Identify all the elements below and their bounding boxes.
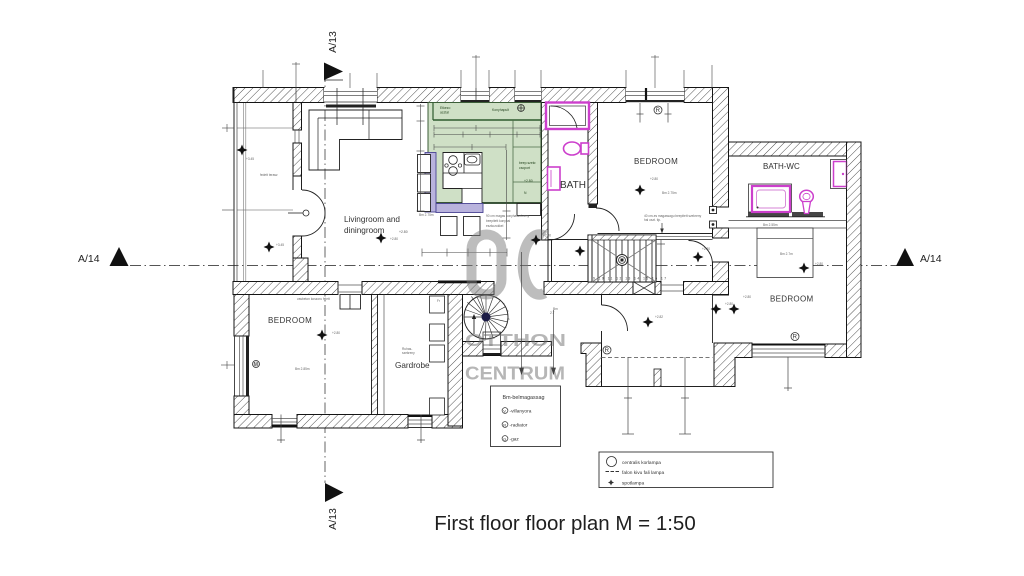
svg-text:+3.45: +3.45 xyxy=(276,243,284,247)
svg-text:Bm 2.75m: Bm 2.75m xyxy=(419,213,434,217)
svg-text:spotlampa: spotlampa xyxy=(622,481,644,487)
svg-text:R: R xyxy=(656,108,661,114)
svg-text:G: G xyxy=(503,436,506,441)
svg-text:Livingroom and: Livingroom and xyxy=(344,215,400,224)
svg-text:+2.80: +2.80 xyxy=(524,179,533,183)
svg-text:Etkezo: Etkezo xyxy=(440,106,450,110)
svg-text:+2.80: +2.80 xyxy=(332,331,340,335)
svg-text:falon kivu fali lampa: falon kivu fali lampa xyxy=(622,470,664,476)
svg-text:-gaz: -gaz xyxy=(510,438,520,443)
svg-text:Bm 2.75m: Bm 2.75m xyxy=(662,191,677,195)
svg-text:BEDROOM: BEDROOM xyxy=(634,157,678,166)
svg-text:diningroom: diningroom xyxy=(344,226,385,235)
svg-text:+2.80: +2.80 xyxy=(543,234,551,238)
svg-text:fedett terasz: fedett terasz xyxy=(260,173,278,177)
svg-text:+2.80: +2.80 xyxy=(702,247,710,251)
svg-text:beepitett konyhai: beepitett konyhai xyxy=(486,219,510,223)
svg-text:A/13: A/13 xyxy=(327,31,339,53)
svg-text:Bm 2.85m: Bm 2.85m xyxy=(295,367,310,371)
svg-text:BATH-WC: BATH-WC xyxy=(763,162,800,171)
svg-text:+2.80: +2.80 xyxy=(399,230,408,234)
svg-text:Konyhapult: Konyhapult xyxy=(492,108,509,112)
svg-text:Bm 2.7m: Bm 2.7m xyxy=(780,252,793,256)
svg-text:hal oszt. tip.: hal oszt. tip. xyxy=(644,218,661,222)
svg-text:A/13: A/13 xyxy=(327,508,339,530)
svg-text:szekreny: szekreny xyxy=(402,351,415,355)
svg-text:-villanyora: -villanyora xyxy=(510,409,532,415)
svg-text:BEDROOM: BEDROOM xyxy=(268,316,312,325)
svg-text:+2.80: +2.80 xyxy=(725,302,733,306)
svg-text:R: R xyxy=(793,335,798,341)
svg-text:A/14: A/14 xyxy=(78,253,100,265)
svg-text:+2.80: +2.80 xyxy=(743,295,751,299)
svg-text:+3.45: +3.45 xyxy=(246,157,254,161)
svg-text:Bm 2.55m: Bm 2.55m xyxy=(763,223,778,227)
svg-text:+2.80: +2.80 xyxy=(815,262,823,266)
svg-text:centralis korlampa: centralis korlampa xyxy=(622,460,661,466)
svg-text:beep.szekr.: beep.szekr. xyxy=(519,161,536,165)
svg-text:Bm-belmagassag: Bm-belmagassag xyxy=(503,395,545,401)
svg-text:BATH: BATH xyxy=(560,180,586,191)
svg-text:CENTRUM: CENTRUM xyxy=(465,363,565,384)
svg-text:M: M xyxy=(254,362,258,368)
svg-text:A/14: A/14 xyxy=(920,253,942,265)
svg-text:2.7: 2.7 xyxy=(550,311,555,315)
svg-text:90 cm magas konyhaszekreny: 90 cm magas konyhaszekreny xyxy=(486,214,529,218)
svg-text:First floor floor plan M = 1:5: First floor floor plan M = 1:50 xyxy=(434,512,696,535)
svg-text:R: R xyxy=(503,422,506,427)
svg-text:Gardrobe: Gardrobe xyxy=(395,361,430,370)
svg-text:BEDROOM: BEDROOM xyxy=(770,295,813,304)
svg-text:+2.80: +2.80 xyxy=(390,237,398,241)
svg-text:+2.82: +2.82 xyxy=(655,315,663,319)
svg-text:-radiator: -radiator xyxy=(510,423,528,429)
svg-text:+2.80: +2.80 xyxy=(650,177,658,181)
svg-text:OTTHON: OTTHON xyxy=(465,330,566,350)
svg-text:eszkozokkel: eszkozokkel xyxy=(486,224,504,228)
svg-text:R: R xyxy=(605,348,610,354)
svg-text:csoport: csoport xyxy=(519,166,530,170)
svg-text:vasbeton koszoru felett: vasbeton koszoru felett xyxy=(297,297,330,301)
svg-text:9 10 11 12 13 14 15 16 17: 9 10 11 12 13 14 15 16 17 xyxy=(593,277,667,281)
svg-text:V: V xyxy=(503,408,506,413)
svg-text:asztal: asztal xyxy=(440,111,449,115)
